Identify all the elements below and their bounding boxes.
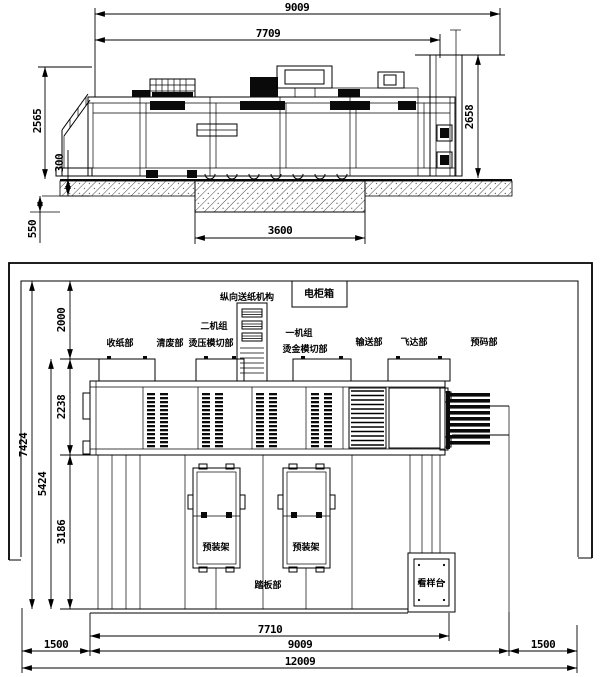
preload-rack-2: 预装架 bbox=[278, 464, 335, 572]
vertical-feeder-label: 纵向送纸机构 bbox=[220, 291, 274, 303]
dim-left-1500: 1500 bbox=[44, 638, 69, 651]
preload-rack-1-label: 预装架 bbox=[202, 541, 229, 553]
dim-top-7709: 7709 bbox=[256, 27, 281, 40]
unit1-sub-label: 烫金模切部 bbox=[282, 343, 327, 355]
dim-2000: 2000 bbox=[55, 308, 68, 333]
footboard-label: 踏板部 bbox=[254, 579, 281, 591]
dim-3186: 3186 bbox=[55, 519, 68, 544]
machine-plan-body bbox=[83, 356, 509, 612]
electric-cabinet-label: 电柜箱 bbox=[304, 287, 334, 300]
preload-rack-2-label: 预装架 bbox=[292, 541, 319, 553]
stripping-label: 清废部 bbox=[156, 337, 183, 349]
dim-2238: 2238 bbox=[55, 395, 68, 420]
dim-top-9009: 9009 bbox=[285, 1, 310, 14]
dim-plan-9009: 9009 bbox=[288, 638, 313, 651]
room-walls bbox=[9, 263, 592, 560]
console-unit bbox=[250, 77, 278, 97]
dim-2658: 2658 bbox=[463, 105, 476, 130]
electric-cabinet-box: 电柜箱 bbox=[292, 281, 347, 307]
ground-floor bbox=[30, 179, 512, 212]
dim-550: 550 bbox=[26, 220, 39, 238]
prestack-label: 预码部 bbox=[470, 336, 497, 348]
conveyor-label: 输送部 bbox=[355, 336, 382, 348]
dim-5424: 5424 bbox=[36, 471, 49, 496]
dim-right-1500: 1500 bbox=[531, 638, 556, 651]
paper-pile-stack bbox=[446, 391, 490, 449]
dim-12009: 12009 bbox=[285, 655, 316, 668]
feeder-label: 飞达部 bbox=[400, 336, 427, 348]
preload-rack-1: 预装架 bbox=[188, 464, 245, 572]
plan-view: 电柜箱 纵向送纸机构 收纸部 清废部 二机组 烫压模切部 一机组 烫金模切部 输… bbox=[9, 263, 592, 673]
dim-300: 300 bbox=[53, 154, 66, 172]
unit2-sub-label: 烫压模切部 bbox=[188, 337, 233, 349]
display-unit bbox=[277, 66, 332, 97]
ribbed-unit bbox=[150, 79, 195, 97]
dim-3600: 3600 bbox=[268, 224, 293, 237]
delivery-label: 收纸部 bbox=[106, 337, 133, 349]
unit2-label: 二机组 bbox=[200, 320, 227, 332]
dim-7710: 7710 bbox=[258, 623, 283, 636]
vertical-feed-tower: 纵向送纸机构 bbox=[220, 291, 274, 381]
machine-side-body bbox=[88, 88, 455, 179]
dim-7424: 7424 bbox=[17, 432, 30, 457]
section-labels: 收纸部 清废部 二机组 烫压模切部 一机组 烫金模切部 输送部 飞达部 预码部 bbox=[106, 320, 497, 355]
side-elevation-view: 9009 7709 2565 300 550 2658 3600 bbox=[26, 1, 512, 244]
sample-table: 看样台 bbox=[408, 553, 455, 612]
dim-2565: 2565 bbox=[31, 109, 44, 134]
window-box bbox=[378, 72, 404, 88]
unit1-label: 一机组 bbox=[285, 327, 312, 339]
sample-table-label: 看样台 bbox=[417, 577, 444, 589]
machine-top-modules bbox=[132, 66, 418, 97]
machine-layout-drawing: 9009 7709 2565 300 550 2658 3600 bbox=[0, 0, 600, 677]
